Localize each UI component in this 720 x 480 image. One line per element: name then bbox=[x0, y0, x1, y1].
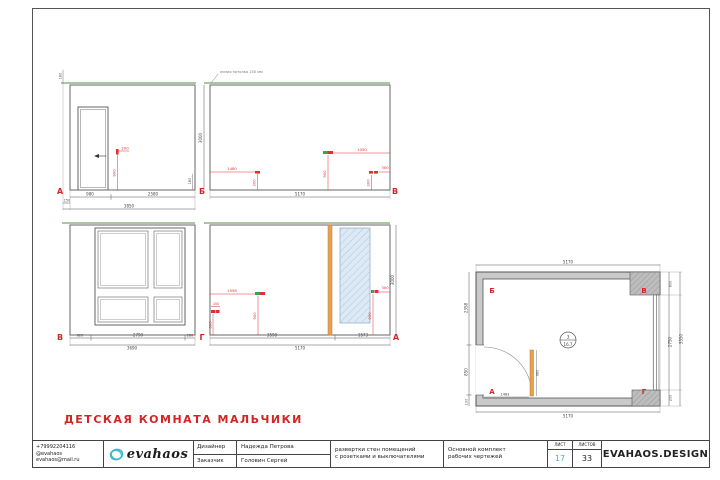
dim-socket-left-offset: 100 bbox=[213, 302, 219, 306]
dim-socket3-offset: 300 bbox=[381, 165, 389, 170]
plan-dim-left-lower: 850 bbox=[464, 368, 469, 376]
set-line1: Основной комплект bbox=[448, 447, 547, 454]
client-name: Головин Сергей bbox=[237, 455, 330, 468]
dim-seg1: 3598 bbox=[267, 333, 278, 338]
floor-plan: 980 1483 3 16.7 Б В А Г 5170 5170 bbox=[464, 260, 684, 419]
contact-email: evahaos@mail.ru bbox=[36, 457, 103, 464]
wall-outline bbox=[210, 85, 390, 190]
plan-dim-left-small: 100 bbox=[465, 399, 469, 405]
brand-cell: EVAHAOS.DESIGN bbox=[602, 441, 709, 467]
dim-total: 3850 bbox=[124, 204, 135, 209]
contact-cell: +79992204116 @evahaos evahaos@mail.ru bbox=[33, 441, 104, 467]
ceiling-note: линия потолка 150 мм bbox=[220, 70, 263, 74]
sheets-total-cell: ЛИСТОВ 33 bbox=[573, 441, 602, 467]
sheet-number-cell: ЛИСТ 17 bbox=[548, 441, 573, 467]
dim-left: 620 bbox=[77, 334, 83, 338]
door bbox=[78, 107, 108, 190]
elevation-b-v: линия потолка 150 мм 3000 1480 300 1050 … bbox=[198, 70, 398, 199]
dim-socket-left-height: 300 bbox=[208, 321, 213, 329]
people-cell: Дизайнер Надежда Петрова Заказчик Голови… bbox=[194, 441, 331, 467]
corner-label-g: Г bbox=[199, 333, 204, 342]
dim-socket-right-height: 900 bbox=[367, 312, 372, 320]
dim-wall-height: 3000 bbox=[198, 132, 203, 143]
sheet-label: ЛИСТ bbox=[548, 441, 572, 450]
plan-dim-left-upper: 2358 bbox=[464, 302, 469, 313]
dim-socket3-height: 300 bbox=[366, 179, 371, 187]
dim-seg2: 1573 bbox=[358, 333, 369, 338]
socket-icon bbox=[375, 290, 379, 293]
title-block: +79992204116 @evahaos evahaos@mail.ru ev… bbox=[32, 440, 710, 468]
evahaos-logo-icon bbox=[109, 447, 124, 462]
sheet-value: 17 bbox=[548, 450, 572, 467]
dim-socket2-offset: 1050 bbox=[357, 147, 367, 152]
dim-socket-right-offset: 300 bbox=[381, 285, 389, 290]
socket-icon bbox=[323, 151, 328, 154]
socket-icon bbox=[211, 310, 215, 313]
logo-cell: evahaos bbox=[104, 441, 194, 467]
room-number: 3 bbox=[567, 335, 570, 341]
corner-label-v: В bbox=[57, 333, 63, 342]
dim-switch-height: 900 bbox=[112, 169, 117, 177]
socket-icon bbox=[328, 151, 333, 154]
corner-label-v: В bbox=[392, 187, 398, 196]
window bbox=[95, 228, 185, 325]
socket-icon bbox=[255, 292, 260, 295]
dim-right: 280 bbox=[187, 334, 193, 338]
switch-icon bbox=[116, 149, 119, 155]
plan-dim-top: 5170 bbox=[563, 260, 574, 265]
dim-wall-height: 3000 bbox=[390, 274, 395, 285]
plan-dim-right-bottom: 200 bbox=[669, 395, 673, 401]
socket-icon bbox=[260, 292, 265, 295]
designer-name: Надежда Петрова bbox=[237, 441, 330, 454]
dim-door-to-radiator: 1483 bbox=[501, 392, 510, 396]
socket-icon bbox=[255, 171, 260, 174]
elevation-g-a: 100 300 1558 900 300 900 3000 3598 bbox=[204, 223, 400, 351]
socket-icon bbox=[371, 290, 374, 293]
client-label: Заказчик bbox=[194, 455, 237, 468]
designer-row: Дизайнер Надежда Петрова bbox=[194, 441, 330, 455]
plan-dim-bottom: 5170 bbox=[563, 414, 574, 419]
designer-label: Дизайнер bbox=[194, 441, 237, 454]
socket-icon bbox=[216, 310, 220, 313]
plan-door-opening bbox=[476, 345, 484, 395]
radiator bbox=[530, 350, 534, 396]
drawing-sheet: 200 900 180 180 980 2580 150 3850 А Б bbox=[0, 0, 720, 480]
dim-switch-offset: 200 bbox=[121, 146, 129, 151]
dim-radiator: 980 bbox=[536, 370, 540, 376]
plan-corner-v: В bbox=[641, 287, 646, 295]
brand-text: EVAHAOS.DESIGN bbox=[603, 449, 708, 460]
sheets-label: ЛИСТОВ bbox=[573, 441, 601, 450]
dim-rest-width: 2580 bbox=[148, 192, 159, 197]
plan-dim-right-total: 3550 bbox=[679, 333, 684, 344]
contact-social: @evahaos bbox=[36, 451, 103, 458]
dim-offset: 150 bbox=[64, 199, 70, 203]
dim-socket1-offset: 1480 bbox=[227, 166, 237, 171]
corner-label-a: А bbox=[57, 187, 64, 196]
socket-icon bbox=[369, 171, 373, 174]
elevation-a-b: 200 900 180 180 980 2580 150 3850 А Б bbox=[57, 70, 205, 210]
dim-ceiling-drop: 180 bbox=[59, 73, 63, 79]
plan-corner-a: А bbox=[489, 388, 495, 396]
drawings-canvas: 200 900 180 180 980 2580 150 3850 А Б bbox=[32, 8, 710, 440]
dim-socket-center-height: 900 bbox=[252, 312, 257, 320]
dim-total: 5170 bbox=[295, 346, 306, 351]
set-line2: рабочих чертежей bbox=[448, 454, 547, 461]
dim-total: 5170 bbox=[295, 192, 306, 197]
set-cell: Основной комплект рабочих чертежей bbox=[444, 441, 548, 467]
riser-strip bbox=[328, 225, 332, 335]
room-area: 16.7 bbox=[564, 342, 573, 347]
sheets-value: 33 bbox=[573, 450, 601, 467]
elevation-v-g: 620 2790 280 3690 В Г bbox=[57, 223, 205, 351]
dim-socket1-height: 300 bbox=[252, 179, 257, 187]
dim-socket2-height: 900 bbox=[322, 170, 327, 178]
page-title: ДЕТСКАЯ КОМНАТА МАЛЬЧИКИ bbox=[64, 413, 303, 426]
plan-corner-g: Г bbox=[642, 388, 647, 396]
dim-door-width: 980 bbox=[86, 192, 94, 197]
plan-dim-right-mid: 2750 bbox=[668, 336, 673, 347]
plan-dim-right-top: 600 bbox=[669, 281, 673, 287]
plan-corner-b: Б bbox=[489, 287, 494, 295]
dim-window: 2790 bbox=[133, 333, 144, 338]
dim-skirt: 180 bbox=[188, 178, 192, 184]
socket-icon bbox=[374, 171, 378, 174]
dim-socket-center-offset: 1558 bbox=[227, 288, 237, 293]
description-cell: развертки стен помещений с розетками и в… bbox=[331, 441, 444, 467]
corner-label-a: А bbox=[393, 333, 400, 342]
description-line2: с розетками и выключателями bbox=[335, 454, 443, 461]
dim-total: 3690 bbox=[127, 346, 138, 351]
contact-phone: +79992204116 bbox=[36, 444, 103, 451]
description-line1: развертки стен помещений bbox=[335, 447, 443, 454]
client-row: Заказчик Головин Сергей bbox=[194, 455, 330, 468]
logo-wordmark: evahaos bbox=[127, 447, 189, 462]
